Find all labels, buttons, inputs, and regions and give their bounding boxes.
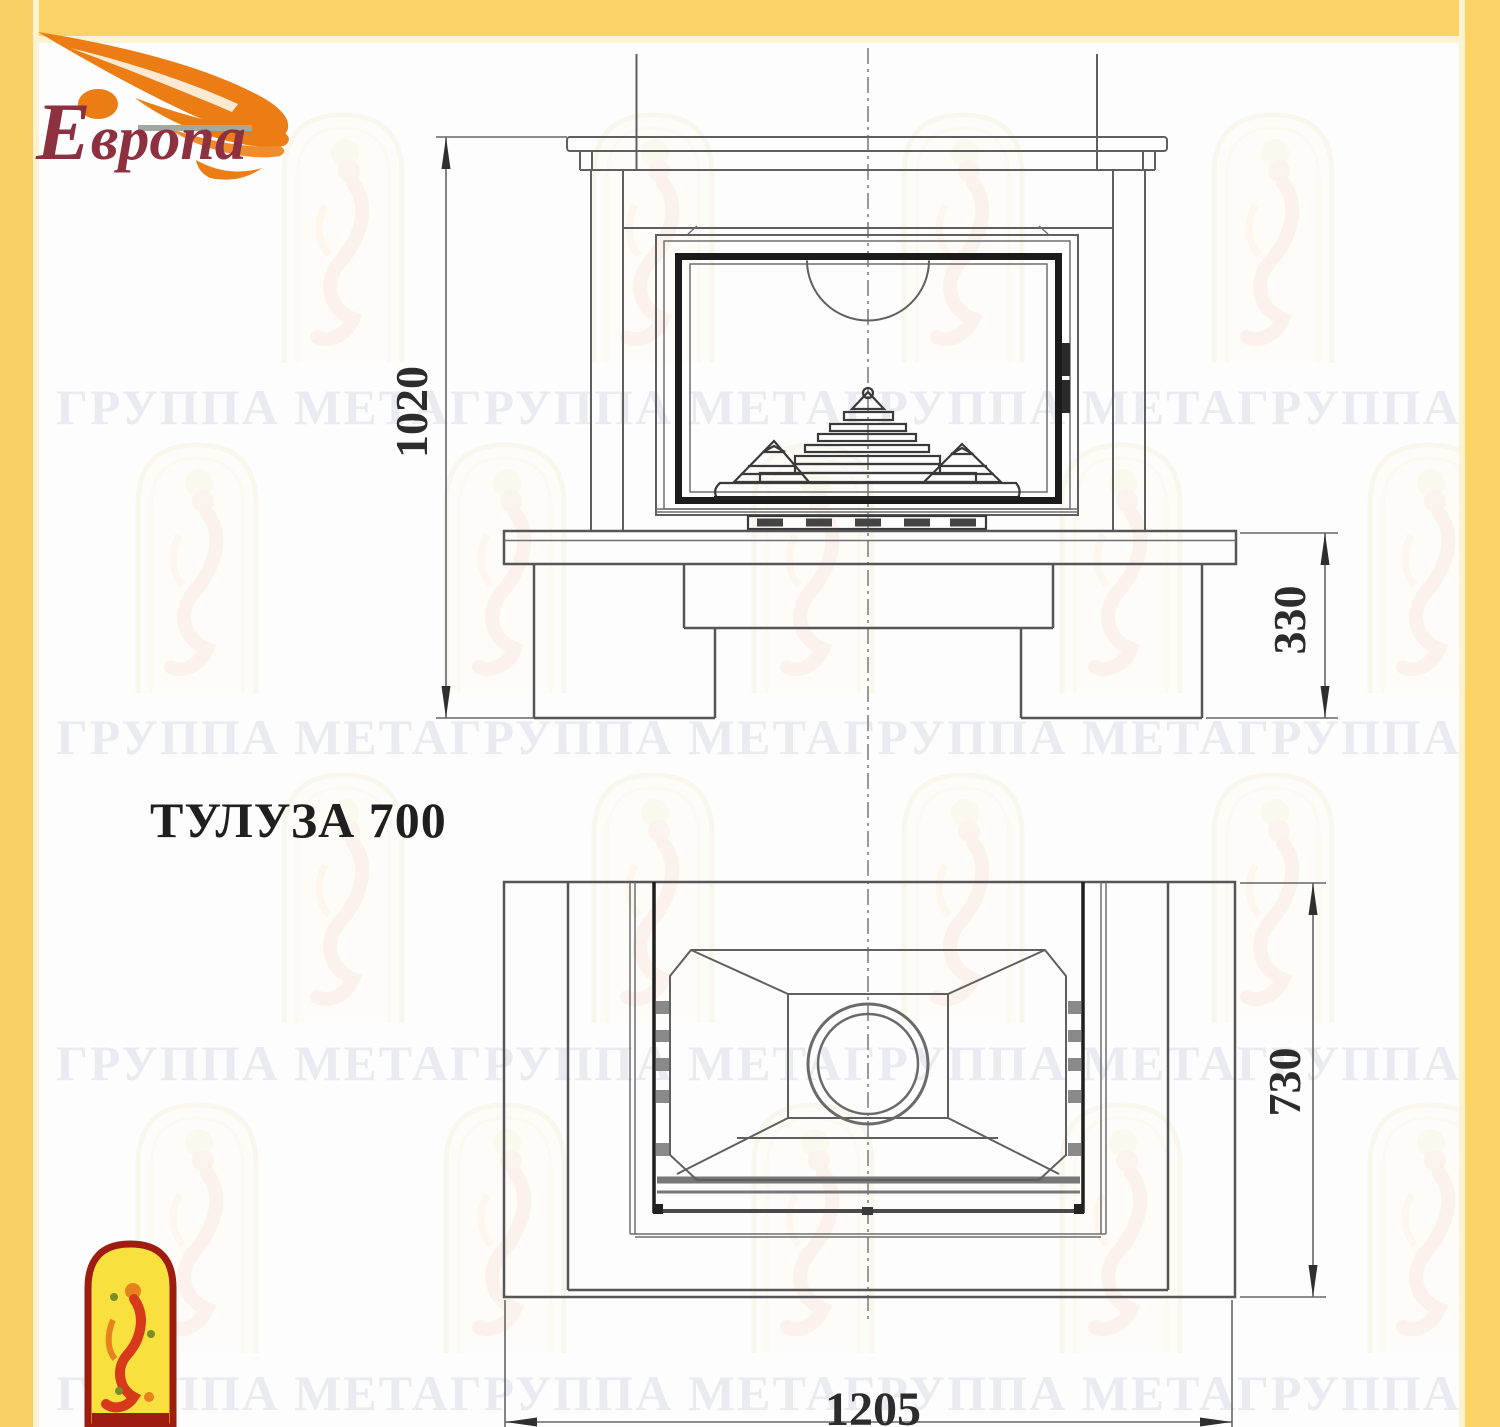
svg-text:ТУЛУЗА 700: ТУЛУЗА 700 bbox=[150, 792, 447, 848]
svg-text:1205: 1205 bbox=[825, 1383, 921, 1427]
svg-text:1020: 1020 bbox=[386, 366, 437, 458]
svg-text:ГРУППА МЕТАГРУППА МЕТАГРУППА М: ГРУППА МЕТАГРУППА МЕТАГРУППА МЕТАГРУППА … bbox=[56, 379, 1500, 435]
svg-text:ГРУППА МЕТАГРУППА МЕТАГРУППА М: ГРУППА МЕТАГРУППА МЕТАГРУППА МЕТАГРУППА … bbox=[56, 1365, 1500, 1421]
svg-text:330: 330 bbox=[1264, 586, 1315, 655]
svg-text:730: 730 bbox=[1259, 1048, 1310, 1117]
